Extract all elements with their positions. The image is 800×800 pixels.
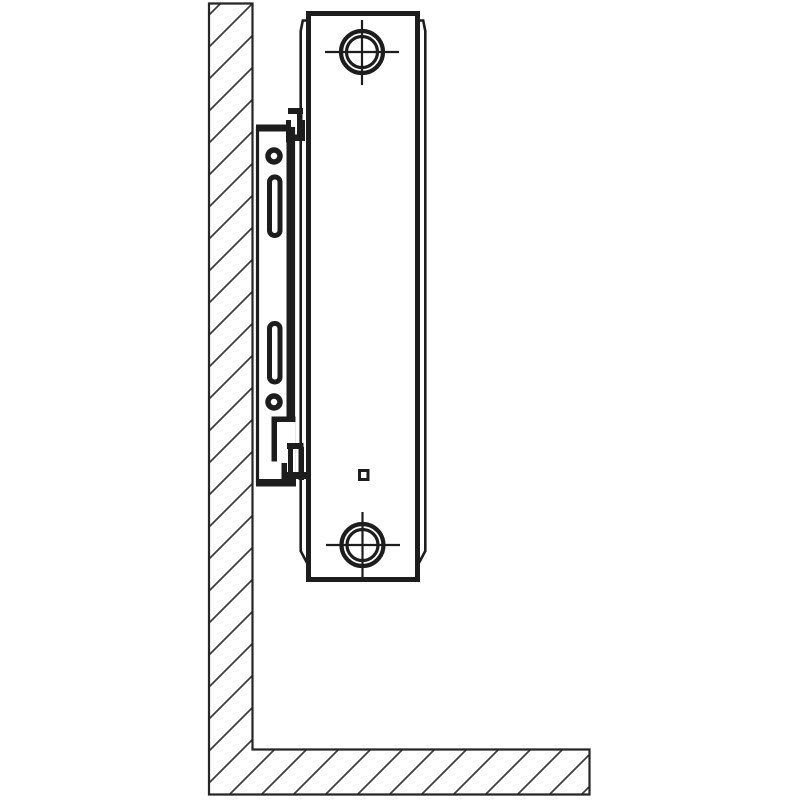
diagram-page	[0, 0, 800, 800]
bracket-top-edge	[256, 125, 289, 132]
radiator-body	[309, 14, 418, 580]
bracket-notch-left-border	[272, 417, 278, 462]
bracket-hole-lower	[268, 396, 280, 408]
bracket-bottom-edge	[256, 479, 296, 487]
bracket-hole-upper	[268, 150, 280, 162]
bracket-right-edge	[287, 127, 296, 419]
bracket-slot-upper	[270, 177, 281, 236]
vent-detail	[360, 471, 369, 480]
installation-diagram	[0, 0, 800, 800]
bottom-clip-left-tab	[282, 463, 288, 482]
bracket-slot-lower	[270, 324, 281, 383]
radiator-group	[301, 14, 426, 580]
bottom-clip-bottom-bar	[284, 472, 307, 479]
